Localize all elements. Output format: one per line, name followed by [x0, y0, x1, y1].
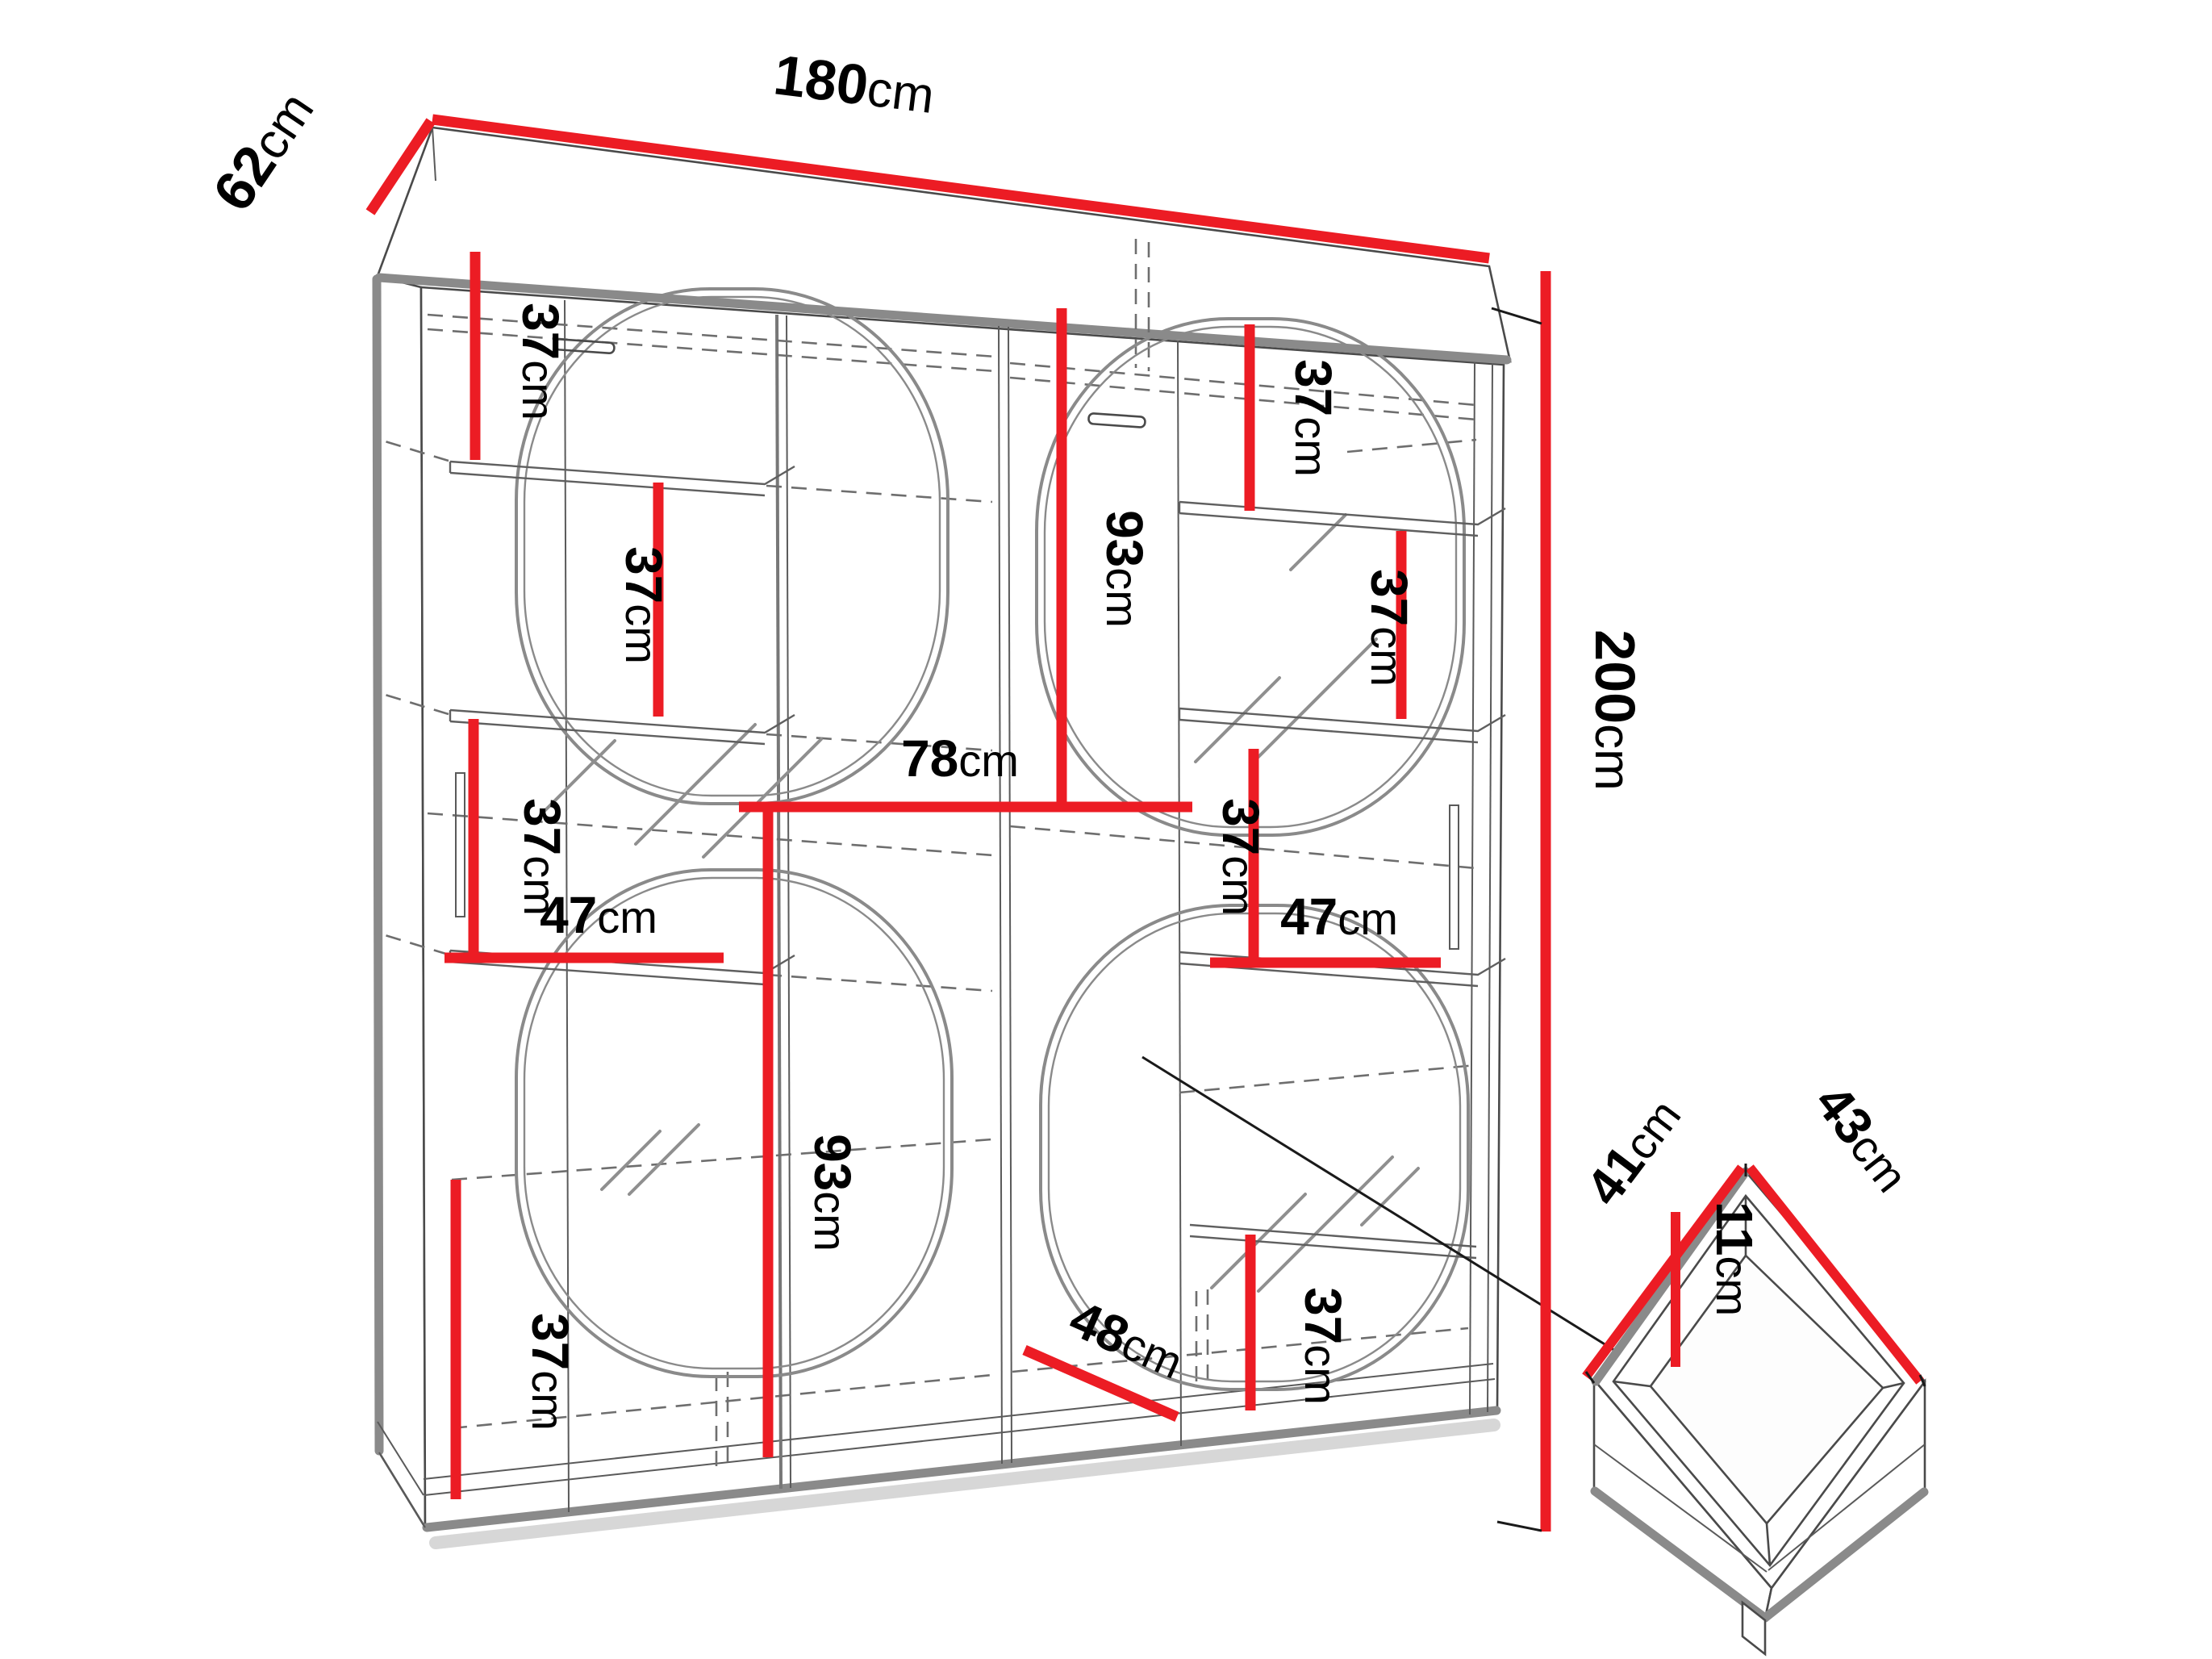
dim-label-62cm: 62cm — [201, 79, 325, 222]
dim-label-37-bottom-right: 37cm — [1294, 1287, 1352, 1405]
dim-label-drawer-11: 11cm — [1705, 1201, 1763, 1316]
dim-label-drawer-41: 41cm — [1575, 1087, 1692, 1216]
dim-label-37-right-mid: 37cm — [1212, 798, 1270, 916]
left-outer-edge — [377, 279, 379, 1451]
dim-label-37-right-top: 37cm — [1284, 359, 1342, 477]
dim-label-200cm: 200cm — [1584, 629, 1646, 790]
dim-label-47-left: 47cm — [540, 886, 657, 944]
dim-label-93-right-upper: 93cm — [1096, 510, 1154, 628]
dim-label-37-left-top: 37cm — [511, 303, 570, 420]
dim-label-180cm: 180cm — [770, 43, 937, 125]
dim-label-drawer-43: 43cm — [1804, 1074, 1922, 1202]
wardrobe-dimension-diagram: 180cm 62cm 200cm 37cm 37cm 37cm 47cm 78c… — [0, 0, 2212, 1659]
dim-label-47-right: 47cm — [1280, 888, 1398, 946]
dim-label-37-left-mid: 37cm — [615, 546, 673, 664]
dim-label-78: 78cm — [901, 729, 1019, 788]
dim-label-37-bottom-left: 37cm — [521, 1313, 579, 1431]
diagram-canvas: 180cm 62cm 200cm 37cm 37cm 37cm 47cm 78c… — [0, 0, 2212, 1659]
dim-label-37-right-oval: 37cm — [1360, 569, 1418, 687]
wardrobe-left-side — [378, 276, 425, 1527]
dim-label-93-left-lower: 93cm — [803, 1134, 862, 1252]
